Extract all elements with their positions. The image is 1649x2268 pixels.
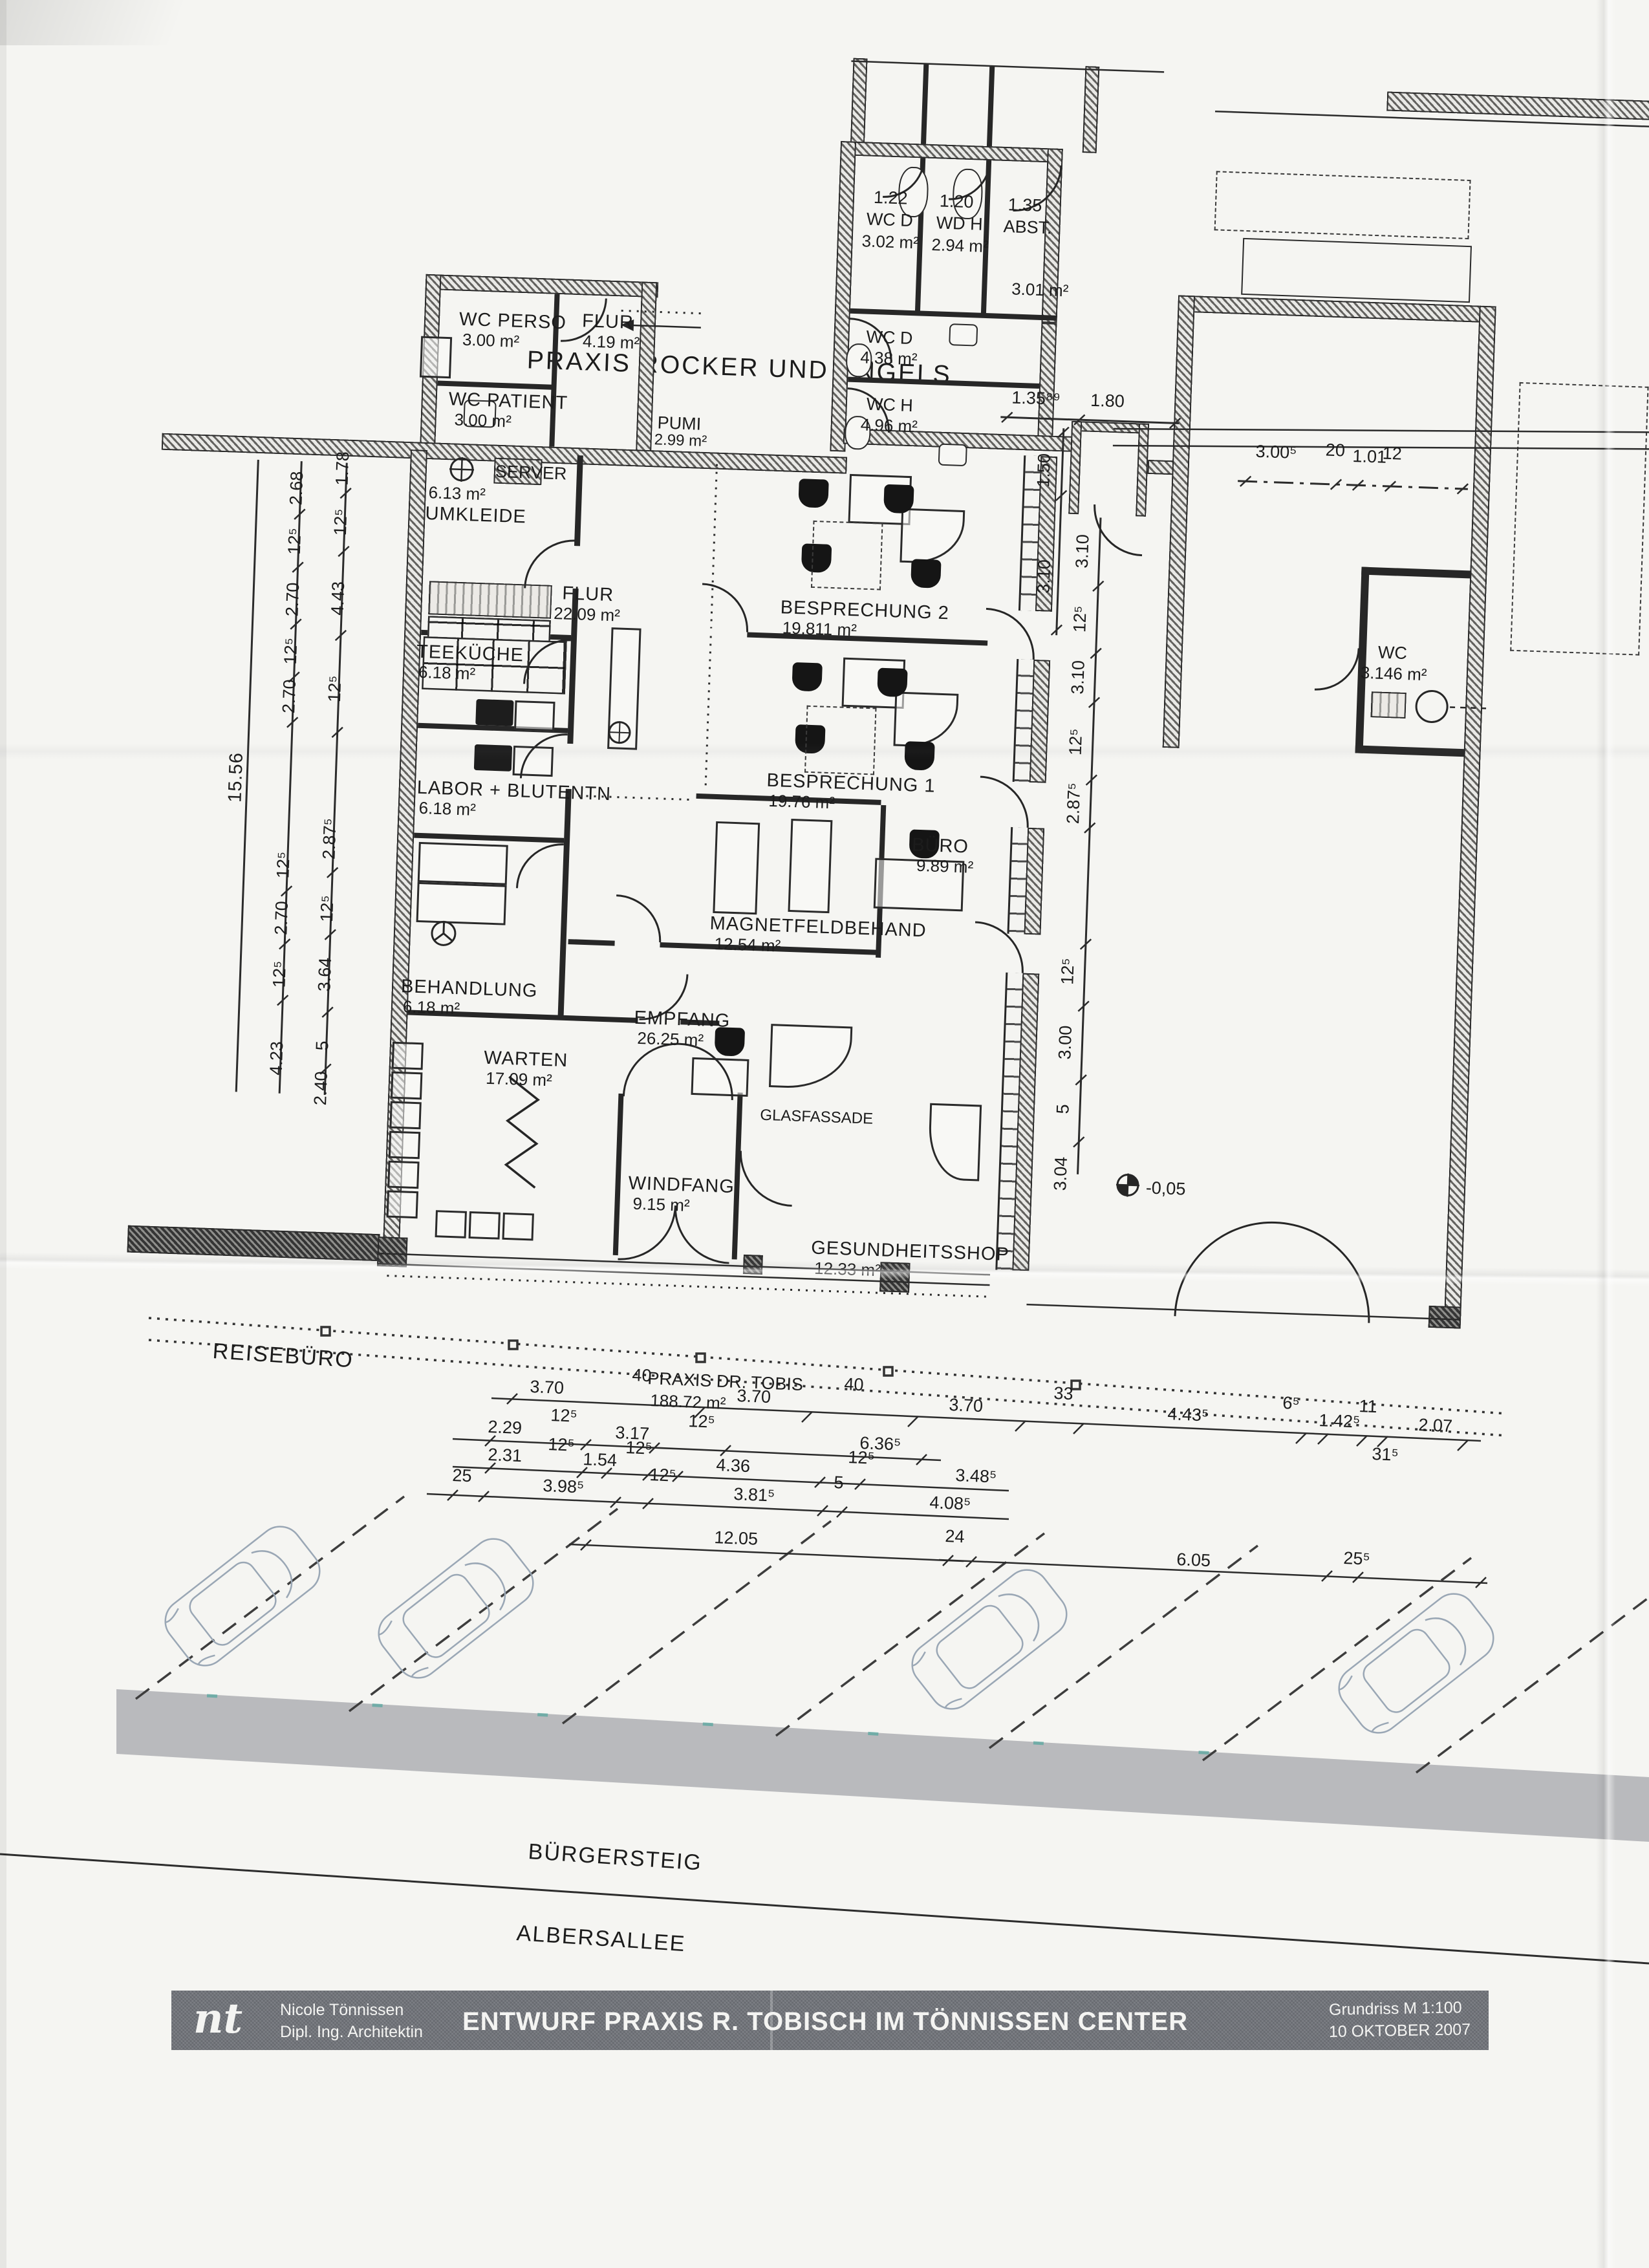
room-area: 4.19 m² (583, 332, 640, 351)
shop-counter (927, 1103, 982, 1182)
dimension: 2.29 (488, 1418, 523, 1437)
dimension: 3.81⁵ (733, 1485, 775, 1505)
dimension: 12⁵ (1071, 605, 1089, 632)
wall (1024, 828, 1044, 935)
room-label: ABST. (1003, 218, 1052, 237)
dimension: 12 (1382, 445, 1402, 463)
dimension: 2.70 (283, 582, 302, 616)
dimension: 12⁵ (649, 1466, 676, 1485)
partition-wall (568, 939, 614, 946)
room-label: WD H (936, 214, 983, 233)
dashed-outline (1214, 171, 1471, 239)
partition-wall (921, 63, 929, 147)
room-label: WC (1378, 644, 1408, 663)
desk (691, 1057, 749, 1097)
room-label: PUMI (657, 414, 701, 433)
dimension: 12⁵ (332, 508, 350, 535)
sink-unit (475, 699, 513, 726)
sink-basin (513, 746, 554, 777)
drawing-date: 10 OKTOBER 2007 (1329, 2020, 1471, 2042)
room-label: WC PERSO (459, 310, 567, 333)
drawing-scale: Grundriss M 1:100 (1329, 1998, 1462, 2020)
waiting-chair (392, 1042, 424, 1070)
wall (850, 58, 868, 146)
dimension: 1.54 (583, 1451, 618, 1469)
room-label: WARTEN (484, 1049, 568, 1071)
room-area: 3.00 m² (462, 331, 520, 350)
room-number: 1.22 (874, 189, 908, 208)
dimension: 3.64 (316, 957, 334, 991)
waiting-chair (387, 1161, 419, 1189)
level-annotation: -0,05 (1145, 1179, 1185, 1198)
wall (830, 141, 856, 452)
partition-wall (613, 1094, 624, 1255)
room-area: 9.15 m² (632, 1195, 690, 1214)
dimension: 6.05 (1176, 1551, 1211, 1570)
wall (1068, 421, 1082, 514)
room-area: 2.99 m² (654, 432, 707, 449)
dimension: 12⁵ (550, 1407, 577, 1425)
room-number: 1.20 (939, 192, 973, 211)
partition-wall (1355, 567, 1370, 753)
dimension: 12⁵ (1059, 958, 1077, 985)
wall (1083, 66, 1100, 153)
room-label: TEEKÜCHE (416, 643, 524, 665)
storefront-wall (127, 1226, 380, 1262)
chair (792, 662, 823, 692)
room-area: 6.13 m² (428, 484, 486, 502)
room-label: FLUR (582, 312, 634, 332)
dimension: 12⁵ (688, 1412, 715, 1431)
dimension: 2.70 (280, 679, 299, 713)
treatment-bed (416, 882, 507, 925)
dimension: 1.42⁵ (1319, 1412, 1361, 1431)
partition-wall (574, 455, 583, 546)
dimension: 5 (834, 1474, 844, 1492)
dashed-outline (804, 706, 877, 775)
room-label: FLUR (562, 584, 614, 605)
room-number: 1.35 (1008, 196, 1042, 215)
scanned-floor-plan-page: PRAXIS ROCKER UND ENGELS (0, 0, 1649, 2268)
room-area: 3.01 m² (1011, 280, 1069, 299)
room-area: 9.89 m² (916, 857, 974, 876)
dimension: 12⁵ (548, 1436, 575, 1454)
room-area: 12.54 m² (714, 935, 781, 955)
unit-area: 188.72 m² (650, 1392, 726, 1412)
dimension: 5 (1054, 1104, 1072, 1114)
reception-counter (769, 1024, 852, 1090)
title-block: nt Nicole Tönnissen Dipl. Ing. Architekt… (171, 1991, 1489, 2050)
partition-wall (850, 308, 1057, 321)
sink-icon (949, 323, 978, 347)
dimension: 3.70 (530, 1378, 565, 1397)
dimension: 3.10 (1073, 534, 1092, 568)
room-area: 26.25 m² (637, 1030, 704, 1049)
room-area: 6.18 m² (403, 998, 460, 1017)
wall (840, 141, 1063, 163)
partition-wall (558, 789, 572, 1017)
partition-wall (987, 66, 995, 150)
partition-wall (1361, 567, 1471, 579)
waiting-chair (391, 1072, 422, 1100)
dashed-outline (1510, 382, 1648, 656)
chair (911, 559, 942, 589)
canopy-outline (1241, 238, 1472, 303)
room-label: BÜRO (912, 836, 969, 857)
sink-icon (938, 444, 967, 467)
partition-wall (1355, 745, 1465, 757)
chair (715, 1027, 746, 1057)
dimension: 2.70 (272, 901, 291, 935)
dimension: 3.00 (1056, 1025, 1075, 1059)
dimension: 1.35⁸⁹ (1011, 389, 1061, 409)
dimension: 2.07 (1418, 1416, 1453, 1435)
dimension: 15.56 (226, 752, 246, 803)
waiting-chair (389, 1101, 421, 1130)
wardrobe (428, 581, 552, 619)
dimension: 5 (314, 1041, 332, 1051)
waiting-chair (389, 1131, 420, 1160)
wall (1072, 421, 1149, 434)
dimension: 12⁵ (326, 675, 344, 702)
dimension: 3.04 (1051, 1156, 1070, 1191)
room-label: WC D (866, 329, 913, 347)
waiting-chair (502, 1213, 533, 1241)
room-area: 3.02 m² (861, 232, 919, 251)
tall-cabinet (607, 627, 641, 750)
therapy-bed (788, 819, 832, 913)
dimension: 20 (1325, 441, 1345, 459)
chair (904, 741, 935, 771)
architect-logo: nt (193, 1994, 242, 2043)
dimension: 3.70 (949, 1396, 984, 1415)
room-label: SERVER (495, 463, 566, 483)
room-area: 19.76 m² (768, 792, 835, 812)
room-area: 4.96 m² (860, 416, 918, 435)
room-area: 17.09 m² (486, 1070, 552, 1089)
dimension: 4.08⁵ (929, 1494, 971, 1513)
pillar (1428, 1306, 1461, 1329)
dimension: 2.40 (312, 1071, 330, 1105)
treatment-bed (418, 842, 508, 885)
dimension: 3.98⁵ (543, 1477, 585, 1496)
dimension: 12.05 (714, 1529, 759, 1548)
dimension: 12⁵ (282, 638, 300, 665)
project-title: ENTWURF PRAXIS R. TOBISCH IM TÖNNISSEN C… (462, 2007, 1188, 2036)
dimension: 12⁵ (286, 528, 304, 555)
dimension: 3.10 (1035, 559, 1053, 594)
dimension: 33 (1053, 1385, 1073, 1403)
pillar (743, 1255, 763, 1275)
dimension: 3.48⁵ (955, 1467, 997, 1486)
wall (1444, 306, 1496, 1328)
dimension: 12⁵ (1067, 728, 1085, 755)
dimension: 1.78 (334, 451, 352, 486)
desk (893, 691, 958, 748)
architect-role: Dipl. Ing. Architektin (280, 2023, 423, 2042)
dimension: 31⁵ (1372, 1445, 1399, 1464)
room-area: 4.38 m² (860, 349, 918, 367)
dimension: 25 (452, 1467, 472, 1485)
dimension: 12⁵ (625, 1439, 652, 1458)
dimension: 2.87⁵ (1064, 783, 1083, 825)
dimension: 12⁵ (318, 895, 336, 922)
room-label: WC D (866, 211, 913, 230)
appliance (1370, 691, 1406, 718)
room-label: WC H (866, 396, 913, 415)
room-area: 3.00 m² (454, 411, 512, 429)
room-area: 6.18 m² (418, 664, 476, 682)
dimension: 4.36 (716, 1456, 751, 1475)
dimension: 1.80 (1090, 392, 1125, 411)
dimension: 40 (632, 1366, 652, 1385)
chair (798, 479, 829, 508)
room-label: GLASFASSADE (760, 1108, 873, 1127)
chair (883, 484, 914, 514)
wall (1163, 295, 1195, 748)
architect-name: Nicole Tönnissen (280, 2001, 404, 2020)
dimension: 12⁵ (274, 852, 292, 879)
dimension: 1.50 (1035, 453, 1053, 488)
dimension: 3.00⁵ (1255, 443, 1297, 462)
therapy-bed (713, 821, 760, 914)
dimension: 24 (945, 1528, 965, 1546)
waiting-chair (435, 1210, 467, 1238)
dimension: 4.43 (329, 581, 348, 616)
room-area: 3.146 m² (1360, 664, 1427, 684)
wall (1037, 323, 1057, 451)
dimension: 4.23 (268, 1041, 286, 1075)
dimension: 11 (1359, 1398, 1377, 1416)
room-area: 12.33 m² (814, 1260, 881, 1279)
plan-linework (0, 0, 1649, 2268)
partition-wall (414, 833, 564, 843)
dimension: 4.43⁵ (1167, 1405, 1209, 1425)
waiting-chair (469, 1211, 501, 1240)
floor-plan: PRAXIS ROCKER UND ENGELS (0, 0, 1649, 2268)
wall (1029, 660, 1051, 783)
dimension: 2.31 (488, 1446, 523, 1465)
dimension: 40 (844, 1376, 864, 1394)
pillar (879, 1262, 911, 1293)
dimension: 6⁵ (1282, 1394, 1300, 1412)
room-label: EMPFANG (634, 1009, 731, 1031)
dashed-outline (811, 521, 883, 590)
dimension: 25⁵ (1343, 1550, 1370, 1568)
room-area: 2.94 m² (931, 236, 989, 255)
desk (900, 508, 965, 565)
room-area: 19.811 m² (782, 619, 857, 638)
wc-fixture (420, 336, 452, 379)
dimension: 12⁵ (270, 960, 288, 988)
room-area: 6.18 m² (418, 799, 476, 818)
wall (1386, 91, 1649, 120)
dimension: 2.68 (287, 471, 306, 505)
wall (426, 274, 659, 298)
room-area: 22.09 m² (554, 605, 620, 624)
room-label: WINDFANG (628, 1174, 735, 1197)
dimension: 3.10 (1069, 660, 1088, 695)
sink-basin (514, 700, 555, 731)
dimension: 2.87⁵ (320, 818, 339, 860)
room-label: UMKLEIDE (425, 504, 526, 526)
dimension: 3.70 (737, 1387, 771, 1406)
waiting-chair (387, 1191, 418, 1219)
pillar (377, 1237, 408, 1268)
chair (877, 668, 908, 698)
dimension: 12⁵ (848, 1449, 875, 1467)
sink-unit (474, 744, 512, 772)
